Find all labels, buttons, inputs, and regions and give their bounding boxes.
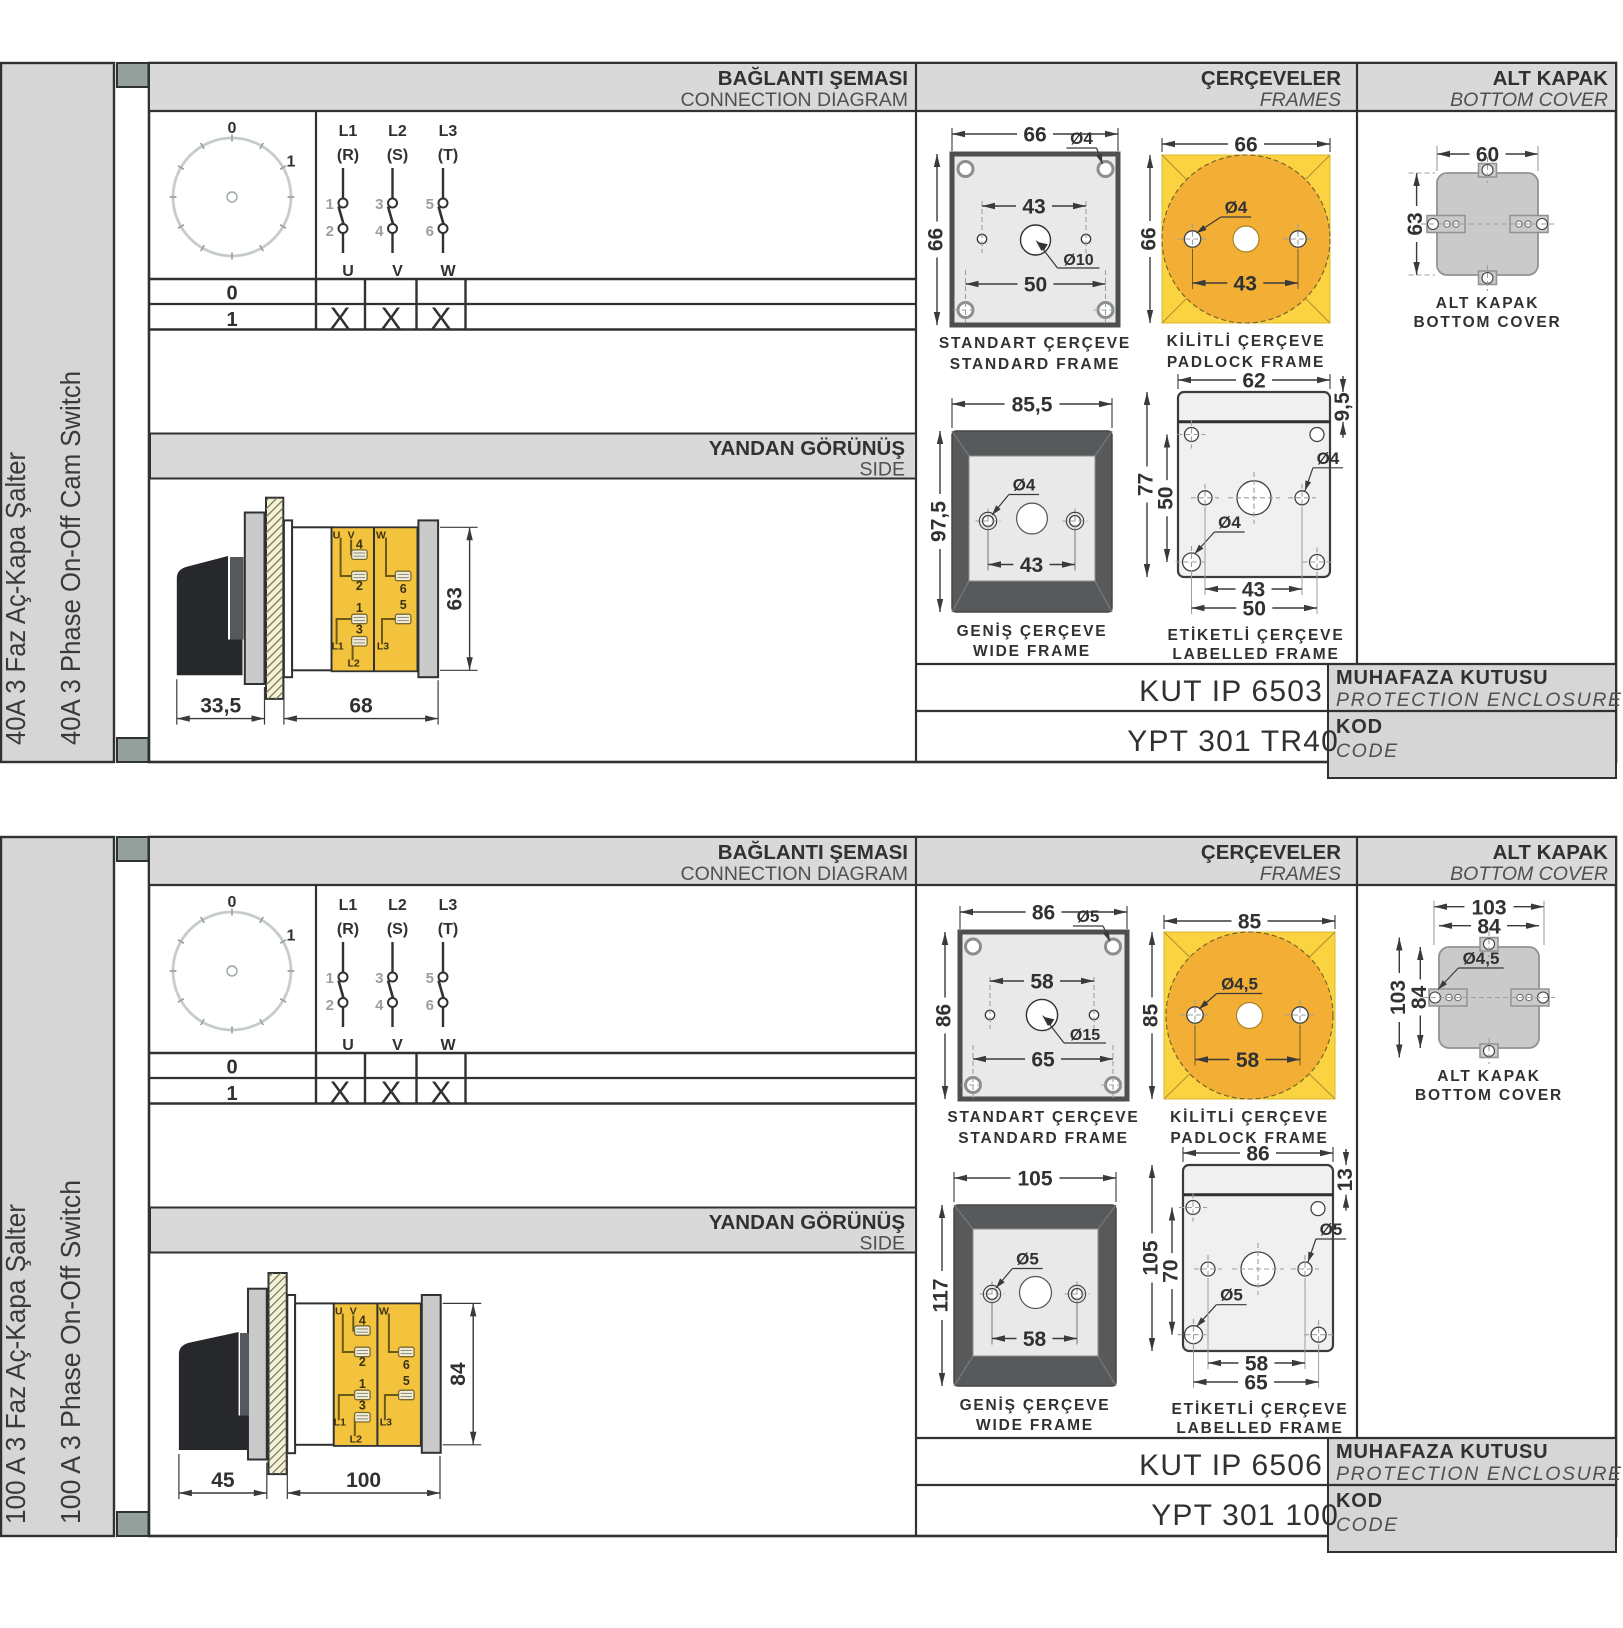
svg-text:X: X	[381, 1075, 402, 1110]
svg-text:Ø5: Ø5	[1016, 1250, 1039, 1269]
svg-text:63: 63	[1404, 212, 1427, 235]
svg-text:Ø4: Ø4	[1013, 476, 1036, 495]
svg-text:117: 117	[930, 1279, 953, 1313]
svg-text:ÇERÇEVELER: ÇERÇEVELER	[1201, 841, 1341, 864]
svg-text:9,5: 9,5	[1331, 392, 1354, 422]
svg-text:L2: L2	[347, 657, 359, 669]
svg-text:5: 5	[400, 598, 407, 612]
svg-text:43: 43	[1022, 196, 1045, 219]
svg-text:STANDART ÇERÇEVE: STANDART ÇERÇEVE	[947, 1109, 1139, 1126]
svg-text:60: 60	[1476, 144, 1499, 167]
svg-text:63: 63	[444, 587, 467, 610]
svg-text:85,5: 85,5	[1012, 394, 1053, 417]
svg-text:KOD: KOD	[1336, 1490, 1383, 1512]
svg-text:58: 58	[1023, 1328, 1047, 1351]
svg-text:V: V	[392, 263, 403, 280]
svg-text:6: 6	[426, 997, 434, 1014]
svg-text:3: 3	[375, 196, 383, 213]
svg-text:(T): (T)	[438, 147, 458, 164]
svg-text:86: 86	[1246, 1143, 1269, 1166]
svg-text:(S): (S)	[387, 921, 408, 938]
svg-text:5: 5	[403, 1374, 410, 1388]
svg-text:4: 4	[375, 223, 384, 240]
svg-text:Ø4: Ø4	[1070, 129, 1093, 148]
svg-text:L2: L2	[350, 1433, 362, 1445]
svg-text:85: 85	[1140, 1004, 1163, 1028]
svg-text:66: 66	[1234, 134, 1257, 157]
svg-text:84: 84	[447, 1362, 470, 1386]
svg-text:1: 1	[226, 309, 237, 331]
svg-text:PROTECTION ENCLOSURE: PROTECTION ENCLOSURE	[1336, 1463, 1623, 1485]
svg-text:YANDAN GÖRÜNÜŞ: YANDAN GÖRÜNÜŞ	[709, 437, 905, 460]
svg-text:33,5: 33,5	[200, 695, 241, 718]
svg-text:SIDE: SIDE	[859, 459, 905, 481]
svg-text:L3: L3	[380, 1416, 392, 1428]
svg-text:Ø15: Ø15	[1070, 1027, 1100, 1044]
svg-text:1: 1	[287, 154, 296, 171]
svg-text:65: 65	[1244, 1372, 1268, 1395]
svg-text:YPT 301 TR40: YPT 301 TR40	[1127, 725, 1339, 758]
svg-text:Ø5: Ø5	[1220, 1286, 1243, 1305]
svg-text:4: 4	[359, 1314, 366, 1328]
svg-text:100 A 3 Phase On-Off Switch: 100 A 3 Phase On-Off Switch	[55, 1180, 86, 1524]
svg-text:Ø4,5: Ø4,5	[1221, 975, 1258, 994]
svg-text:FRAMES: FRAMES	[1260, 89, 1341, 111]
svg-text:KİLİTLİ ÇERÇEVE: KİLİTLİ ÇERÇEVE	[1167, 333, 1326, 350]
svg-text:62: 62	[1242, 370, 1265, 393]
svg-text:66: 66	[925, 228, 948, 251]
svg-text:70: 70	[1160, 1259, 1183, 1282]
svg-text:GENİŞ ÇERÇEVE: GENİŞ ÇERÇEVE	[957, 623, 1108, 640]
svg-text:BOTTOM COVER: BOTTOM COVER	[1414, 314, 1562, 331]
svg-text:KUT IP 6506: KUT IP 6506	[1139, 1449, 1323, 1482]
svg-text:KUT IP 6503: KUT IP 6503	[1139, 675, 1323, 708]
svg-text:GENİŞ ÇERÇEVE: GENİŞ ÇERÇEVE	[960, 1397, 1111, 1414]
svg-text:50: 50	[1243, 598, 1266, 621]
svg-text:ETİKETLİ ÇERÇEVE: ETİKETLİ ÇERÇEVE	[1168, 627, 1345, 644]
svg-text:L3: L3	[439, 123, 458, 140]
svg-text:4: 4	[375, 997, 384, 1014]
svg-text:58: 58	[1236, 1049, 1260, 1072]
svg-text:4: 4	[356, 538, 363, 552]
svg-text:YPT 301 100: YPT 301 100	[1151, 1499, 1339, 1532]
svg-text:ALT KAPAK: ALT KAPAK	[1437, 1068, 1540, 1085]
svg-text:X: X	[330, 301, 351, 336]
svg-text:100 A 3 Faz Aç-Kapa Şalter: 100 A 3 Faz Aç-Kapa Şalter	[0, 1204, 31, 1524]
svg-text:40A 3 Faz Aç-Kapa Şalter: 40A 3 Faz Aç-Kapa Şalter	[0, 452, 31, 745]
svg-text:X: X	[330, 1075, 351, 1110]
svg-text:40A 3 Phase On-Off Cam Switch: 40A 3 Phase On-Off Cam Switch	[55, 371, 86, 745]
svg-text:WIDE FRAME: WIDE FRAME	[973, 643, 1091, 660]
svg-text:(S): (S)	[387, 147, 408, 164]
svg-text:45: 45	[211, 1469, 235, 1492]
svg-text:W: W	[379, 1306, 389, 1318]
svg-text:X: X	[431, 301, 452, 336]
svg-text:1: 1	[326, 970, 334, 987]
svg-text:1: 1	[326, 196, 334, 213]
svg-text:2: 2	[356, 579, 363, 593]
svg-text:66: 66	[1138, 227, 1161, 250]
svg-text:100: 100	[346, 1469, 381, 1492]
svg-text:13: 13	[1334, 1168, 1357, 1191]
svg-text:0: 0	[228, 894, 237, 911]
svg-text:U: U	[335, 1306, 343, 1318]
svg-text:U: U	[342, 263, 354, 280]
svg-text:2: 2	[359, 1355, 366, 1369]
svg-text:65: 65	[1031, 1049, 1055, 1072]
svg-text:84: 84	[1477, 915, 1501, 938]
svg-text:CODE: CODE	[1336, 740, 1399, 762]
svg-text:U: U	[342, 1037, 354, 1054]
svg-text:MUHAFAZA KUTUSU: MUHAFAZA KUTUSU	[1336, 1441, 1548, 1463]
svg-text:2: 2	[326, 997, 334, 1014]
svg-text:L2: L2	[388, 897, 407, 914]
svg-text:86: 86	[933, 1004, 956, 1027]
svg-text:L3: L3	[377, 640, 389, 652]
svg-text:Ø4: Ø4	[1218, 513, 1241, 532]
svg-text:L1: L1	[331, 640, 343, 652]
svg-text:66: 66	[1023, 124, 1046, 147]
svg-text:3: 3	[375, 970, 383, 987]
svg-text:V: V	[348, 530, 355, 542]
svg-text:85: 85	[1238, 911, 1262, 934]
svg-text:L3: L3	[439, 897, 458, 914]
svg-text:FRAMES: FRAMES	[1260, 863, 1341, 885]
svg-text:ETİKETLİ ÇERÇEVE: ETİKETLİ ÇERÇEVE	[1172, 1401, 1349, 1418]
svg-text:WIDE FRAME: WIDE FRAME	[976, 1417, 1094, 1434]
svg-text:5: 5	[426, 196, 434, 213]
svg-text:LABELLED FRAME: LABELLED FRAME	[1172, 646, 1339, 663]
svg-text:V: V	[392, 1037, 403, 1054]
svg-text:Ø5: Ø5	[1320, 1220, 1343, 1239]
svg-text:ÇERÇEVELER: ÇERÇEVELER	[1201, 67, 1341, 90]
svg-text:1: 1	[226, 1083, 237, 1105]
svg-text:CONNECTION DIAGRAM: CONNECTION DIAGRAM	[680, 863, 908, 885]
svg-text:43: 43	[1020, 554, 1043, 577]
svg-text:CODE: CODE	[1336, 1514, 1399, 1536]
svg-text:SIDE: SIDE	[859, 1233, 905, 1255]
svg-text:97,5: 97,5	[928, 501, 951, 542]
svg-text:103: 103	[1387, 980, 1410, 1015]
svg-text:BAĞLANTI ŞEMASI: BAĞLANTI ŞEMASI	[718, 66, 908, 90]
svg-text:BOTTOM COVER: BOTTOM COVER	[1415, 1087, 1563, 1104]
svg-text:(R): (R)	[337, 147, 359, 164]
svg-text:86: 86	[1032, 902, 1055, 925]
svg-text:1: 1	[356, 601, 363, 615]
svg-text:0: 0	[226, 283, 237, 305]
svg-text:STANDARD FRAME: STANDARD FRAME	[950, 356, 1120, 373]
svg-text:LABELLED FRAME: LABELLED FRAME	[1176, 1420, 1343, 1437]
svg-text:Ø4: Ø4	[1317, 449, 1340, 468]
svg-text:43: 43	[1234, 273, 1257, 296]
svg-text:X: X	[431, 1075, 452, 1110]
svg-text:STANDART ÇERÇEVE: STANDART ÇERÇEVE	[939, 335, 1131, 352]
svg-text:105: 105	[1017, 1168, 1052, 1191]
svg-text:3: 3	[356, 622, 363, 636]
svg-text:W: W	[440, 1037, 456, 1054]
svg-text:PROTECTION ENCLOSURE: PROTECTION ENCLOSURE	[1336, 689, 1623, 711]
svg-text:0: 0	[228, 120, 237, 137]
svg-text:W: W	[376, 530, 386, 542]
svg-text:L1: L1	[339, 123, 358, 140]
svg-text:L1: L1	[334, 1416, 346, 1428]
svg-text:58: 58	[1030, 971, 1054, 994]
svg-text:MUHAFAZA KUTUSU: MUHAFAZA KUTUSU	[1336, 667, 1548, 689]
svg-text:(T): (T)	[438, 921, 458, 938]
svg-text:6: 6	[400, 582, 407, 596]
svg-text:2: 2	[326, 223, 334, 240]
svg-text:U: U	[333, 530, 341, 542]
svg-text:KİLİTLİ ÇERÇEVE: KİLİTLİ ÇERÇEVE	[1170, 1109, 1329, 1126]
svg-text:ALT KAPAK: ALT KAPAK	[1493, 67, 1609, 90]
svg-text:5: 5	[426, 970, 434, 987]
svg-text:68: 68	[349, 695, 373, 718]
svg-text:Ø4: Ø4	[1225, 198, 1248, 217]
svg-text:3: 3	[359, 1398, 366, 1412]
svg-text:6: 6	[426, 223, 434, 240]
svg-text:W: W	[440, 263, 456, 280]
svg-text:V: V	[350, 1306, 357, 1318]
svg-text:ALT KAPAK: ALT KAPAK	[1493, 841, 1609, 864]
svg-text:Ø4,5: Ø4,5	[1463, 949, 1500, 968]
svg-text:6: 6	[403, 1358, 410, 1372]
svg-text:YANDAN GÖRÜNÜŞ: YANDAN GÖRÜNÜŞ	[709, 1211, 905, 1234]
svg-text:(R): (R)	[337, 921, 359, 938]
svg-text:0: 0	[226, 1057, 237, 1079]
svg-text:STANDARD FRAME: STANDARD FRAME	[958, 1130, 1128, 1147]
svg-text:BOTTOM COVER: BOTTOM COVER	[1450, 863, 1608, 885]
svg-text:50: 50	[1024, 274, 1047, 297]
svg-text:CONNECTION DIAGRAM: CONNECTION DIAGRAM	[680, 89, 908, 111]
svg-text:L1: L1	[339, 897, 358, 914]
svg-text:PADLOCK FRAME: PADLOCK FRAME	[1167, 354, 1325, 371]
svg-text:BAĞLANTI ŞEMASI: BAĞLANTI ŞEMASI	[718, 840, 908, 864]
svg-text:50: 50	[1155, 487, 1178, 510]
svg-text:1: 1	[359, 1377, 366, 1391]
svg-text:L2: L2	[388, 123, 407, 140]
svg-text:ALT KAPAK: ALT KAPAK	[1436, 295, 1539, 312]
svg-text:X: X	[381, 301, 402, 336]
svg-text:Ø10: Ø10	[1063, 252, 1093, 269]
svg-text:1: 1	[287, 928, 296, 945]
svg-text:84: 84	[1408, 986, 1431, 1010]
svg-text:BOTTOM COVER: BOTTOM COVER	[1450, 89, 1608, 111]
svg-text:Ø5: Ø5	[1077, 907, 1100, 926]
svg-text:KOD: KOD	[1336, 716, 1383, 738]
